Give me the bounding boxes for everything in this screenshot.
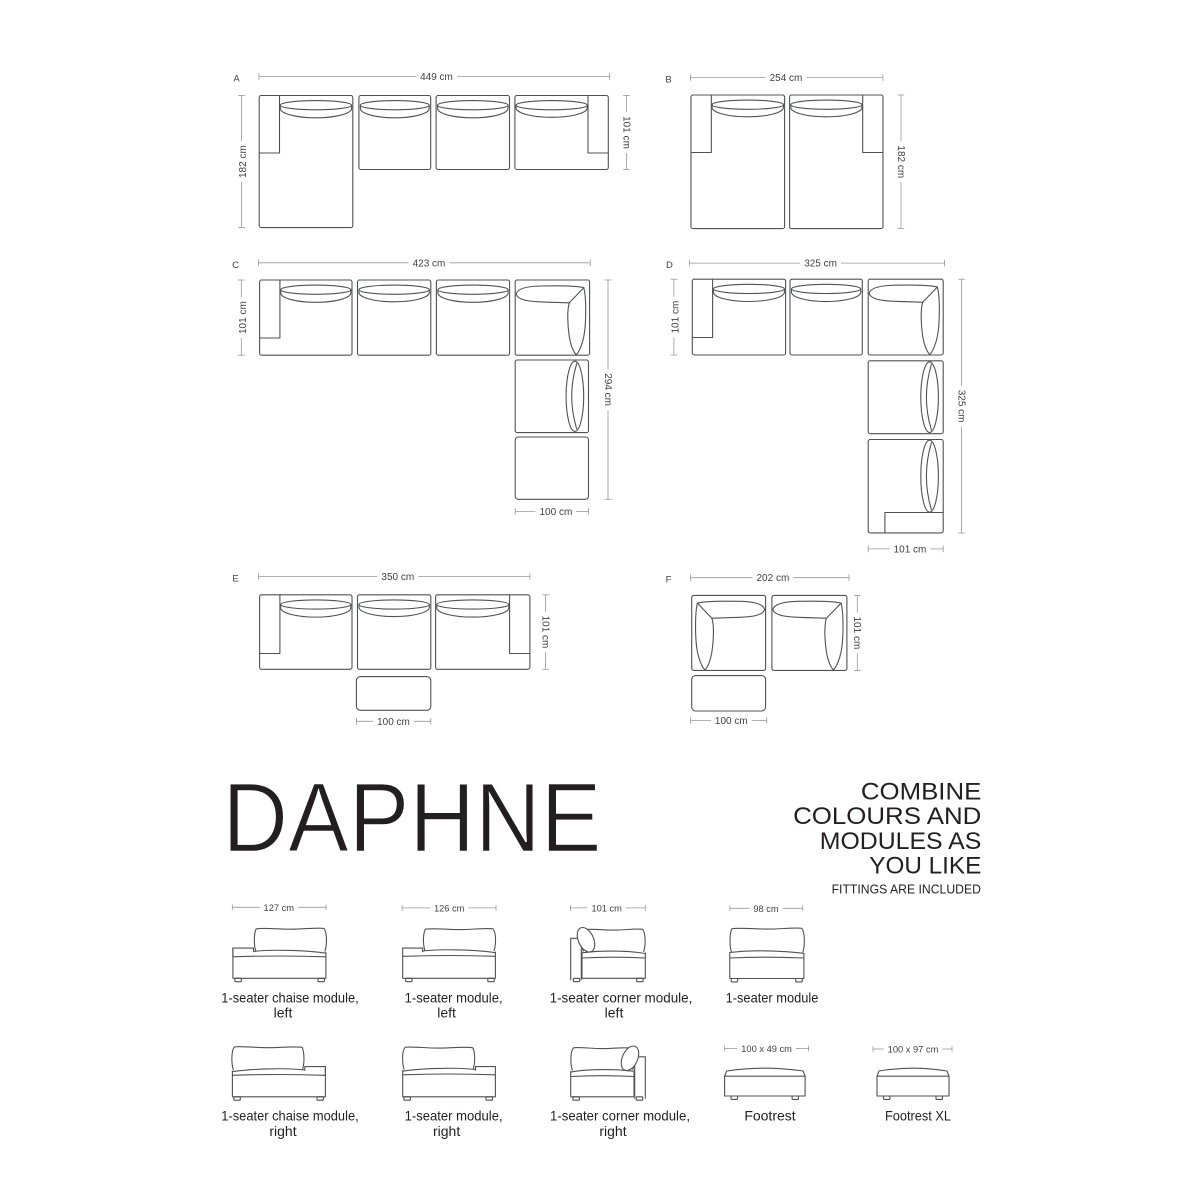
svg-text:202 cm: 202 cm [757,573,790,584]
svg-text:1-seater chaise module,: 1-seater chaise module, [221,1108,358,1124]
svg-text:325 cm: 325 cm [804,259,837,270]
svg-text:100 cm: 100 cm [540,507,573,518]
svg-text:98 cm: 98 cm [753,904,779,914]
svg-text:423 cm: 423 cm [413,258,446,269]
svg-text:Footrest XL: Footrest XL [885,1108,951,1124]
svg-text:101 cm: 101 cm [851,617,862,650]
svg-text:182 cm: 182 cm [238,145,249,178]
svg-text:COLOURS AND: COLOURS AND [793,803,981,830]
svg-text:DAPHNE: DAPHNE [222,763,601,873]
svg-text:182 cm: 182 cm [895,145,906,178]
svg-text:1-seater module: 1-seater module [726,989,819,1005]
svg-text:F: F [666,575,672,586]
svg-text:325 cm: 325 cm [955,390,966,423]
svg-text:D: D [666,260,673,271]
svg-text:350 cm: 350 cm [381,572,414,583]
svg-text:254 cm: 254 cm [770,73,803,84]
svg-text:101 cm: 101 cm [620,116,631,149]
svg-text:449 cm: 449 cm [420,72,453,83]
svg-text:left: left [274,1005,293,1021]
svg-text:1-seater chaise module,: 1-seater chaise module, [221,989,358,1005]
svg-text:100 x 97 cm: 100 x 97 cm [888,1045,939,1055]
svg-text:100 cm: 100 cm [377,717,410,728]
svg-text:101 cm: 101 cm [591,903,622,913]
svg-text:FITTINGS ARE INCLUDED: FITTINGS ARE INCLUDED [832,882,981,897]
svg-text:left: left [605,1005,624,1021]
svg-text:right: right [269,1123,296,1139]
svg-text:101 cm: 101 cm [671,301,682,334]
svg-text:E: E [232,574,238,585]
svg-text:1-seater corner module,: 1-seater corner module, [550,989,693,1005]
svg-text:101 cm: 101 cm [540,616,551,649]
svg-text:Footrest: Footrest [744,1108,795,1124]
svg-text:MODULES AS: MODULES AS [820,828,982,855]
svg-text:YOU LIKE: YOU LIKE [869,853,981,880]
svg-text:right: right [433,1123,460,1139]
svg-text:101 cm: 101 cm [894,544,927,555]
svg-text:126 cm: 126 cm [434,903,465,913]
svg-text:100 x 49 cm: 100 x 49 cm [741,1044,792,1054]
svg-text:1-seater module,: 1-seater module, [405,1108,503,1124]
svg-text:A: A [233,74,240,85]
svg-text:294 cm: 294 cm [602,373,613,406]
svg-text:100 cm: 100 cm [715,716,748,727]
svg-text:right: right [599,1123,626,1139]
svg-text:1-seater corner module,: 1-seater corner module, [550,1108,690,1124]
svg-text:B: B [665,75,671,86]
svg-text:101 cm: 101 cm [238,301,249,334]
svg-text:127 cm: 127 cm [264,903,295,913]
svg-text:1-seater module,: 1-seater module, [405,989,503,1005]
svg-text:left: left [437,1005,456,1021]
svg-text:COMBINE: COMBINE [861,778,981,805]
svg-text:C: C [232,260,239,271]
